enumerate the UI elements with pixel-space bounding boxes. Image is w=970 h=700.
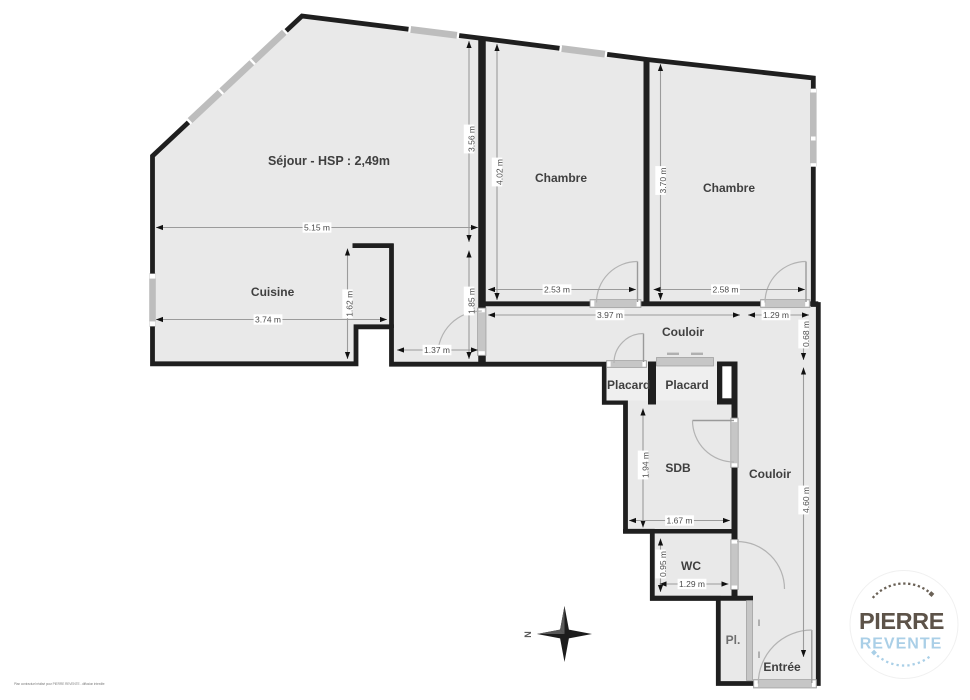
svg-text:PIERRE: PIERRE xyxy=(859,608,944,634)
svg-text:REVENTE: REVENTE xyxy=(860,636,943,653)
